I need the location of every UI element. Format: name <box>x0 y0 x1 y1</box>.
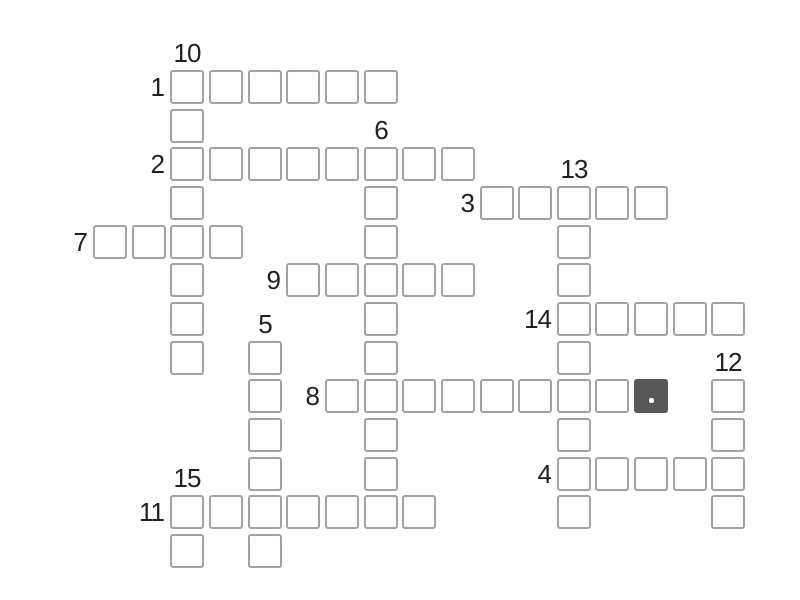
crossword-cell[interactable] <box>209 70 243 104</box>
clue-number-10: 10 <box>147 37 227 69</box>
crossword-cell[interactable] <box>248 70 282 104</box>
clue-number-6: 6 <box>341 114 421 146</box>
crossword-cell[interactable] <box>364 302 398 336</box>
clue-number-11: 11 <box>112 495 164 529</box>
crossword-cell[interactable] <box>480 379 514 413</box>
crossword-cell[interactable] <box>634 302 668 336</box>
crossword-cell[interactable] <box>325 495 359 529</box>
crossword-cell[interactable] <box>557 186 591 220</box>
crossword-cell[interactable] <box>248 147 282 181</box>
crossword-cell[interactable] <box>286 147 320 181</box>
crossword-cell[interactable] <box>673 457 707 491</box>
crossword-cell[interactable] <box>402 147 436 181</box>
crossword-cell[interactable] <box>364 186 398 220</box>
crossword-cell[interactable] <box>93 225 127 259</box>
crossword-cell[interactable] <box>364 495 398 529</box>
crossword-cell[interactable] <box>673 302 707 336</box>
crossword-cell[interactable] <box>248 341 282 375</box>
clue-number-13: 13 <box>534 153 614 185</box>
crossword-cell[interactable] <box>402 263 436 297</box>
crossword-cell[interactable] <box>557 379 591 413</box>
clue-number-12: 12 <box>688 346 768 378</box>
crossword-cell[interactable] <box>248 379 282 413</box>
crossword-cell[interactable] <box>325 147 359 181</box>
crossword-cell[interactable] <box>480 186 514 220</box>
crossword-cell[interactable] <box>634 457 668 491</box>
crossword-cell[interactable] <box>711 302 745 336</box>
crossword-cell[interactable] <box>441 147 475 181</box>
clue-number-4: 4 <box>499 457 551 491</box>
crossword-cell[interactable] <box>209 495 243 529</box>
crossword-cell[interactable] <box>557 418 591 452</box>
crossword-cell[interactable] <box>557 341 591 375</box>
crossword-cell[interactable] <box>286 263 320 297</box>
clue-number-1: 1 <box>112 70 164 104</box>
crossword-cell[interactable] <box>325 379 359 413</box>
crossword-cell[interactable] <box>209 225 243 259</box>
crossword-cell[interactable] <box>711 495 745 529</box>
crossword-cell[interactable] <box>402 379 436 413</box>
clue-number-9: 9 <box>228 263 280 297</box>
clue-number-2: 2 <box>112 147 164 181</box>
crossword-cell[interactable] <box>364 418 398 452</box>
crossword-cell[interactable] <box>170 302 204 336</box>
clue-number-15: 15 <box>147 462 227 494</box>
crossword-cell[interactable] <box>170 225 204 259</box>
crossword-cell[interactable] <box>364 457 398 491</box>
selected-cell[interactable] <box>634 379 668 413</box>
crossword-cell[interactable] <box>518 186 552 220</box>
crossword-cell[interactable] <box>248 534 282 568</box>
crossword-cell[interactable] <box>518 379 552 413</box>
crossword-cell[interactable] <box>170 109 204 143</box>
crossword-cell[interactable] <box>364 225 398 259</box>
crossword-cell[interactable] <box>325 70 359 104</box>
crossword-cell[interactable] <box>441 263 475 297</box>
crossword-cell[interactable] <box>595 186 629 220</box>
crossword-cell[interactable] <box>248 495 282 529</box>
cursor-dot <box>649 398 654 403</box>
crossword-cell[interactable] <box>170 341 204 375</box>
crossword-cell[interactable] <box>711 457 745 491</box>
crossword-cell[interactable] <box>402 495 436 529</box>
crossword-cell[interactable] <box>170 534 204 568</box>
crossword-cell[interactable] <box>286 70 320 104</box>
crossword-cell[interactable] <box>595 379 629 413</box>
crossword-cell[interactable] <box>441 379 475 413</box>
crossword-cell[interactable] <box>557 263 591 297</box>
crossword-cell[interactable] <box>557 225 591 259</box>
crossword-cell[interactable] <box>634 186 668 220</box>
crossword-cell[interactable] <box>248 418 282 452</box>
clue-number-14: 14 <box>499 302 551 336</box>
crossword-cell[interactable] <box>595 457 629 491</box>
clue-number-3: 3 <box>422 186 474 220</box>
clue-number-5: 5 <box>225 308 305 340</box>
crossword-cell[interactable] <box>557 495 591 529</box>
crossword-cell[interactable] <box>711 418 745 452</box>
crossword-cell[interactable] <box>170 147 204 181</box>
crossword-cell[interactable] <box>711 379 745 413</box>
crossword-cell[interactable] <box>325 263 359 297</box>
crossword-cell[interactable] <box>364 341 398 375</box>
crossword-cell[interactable] <box>170 70 204 104</box>
crossword-cell[interactable] <box>248 457 282 491</box>
crossword-cell[interactable] <box>364 379 398 413</box>
crossword-cell[interactable] <box>286 495 320 529</box>
crossword-cell[interactable] <box>557 457 591 491</box>
crossword-board: 123456789101112131415 <box>0 0 800 600</box>
crossword-cell[interactable] <box>170 495 204 529</box>
crossword-cell[interactable] <box>170 186 204 220</box>
crossword-cell[interactable] <box>364 70 398 104</box>
crossword-cell[interactable] <box>364 263 398 297</box>
crossword-cell[interactable] <box>364 147 398 181</box>
crossword-cell[interactable] <box>595 302 629 336</box>
clue-number-7: 7 <box>35 225 87 259</box>
crossword-cell[interactable] <box>170 263 204 297</box>
crossword-cell[interactable] <box>557 302 591 336</box>
crossword-cell[interactable] <box>132 225 166 259</box>
crossword-cell[interactable] <box>209 147 243 181</box>
